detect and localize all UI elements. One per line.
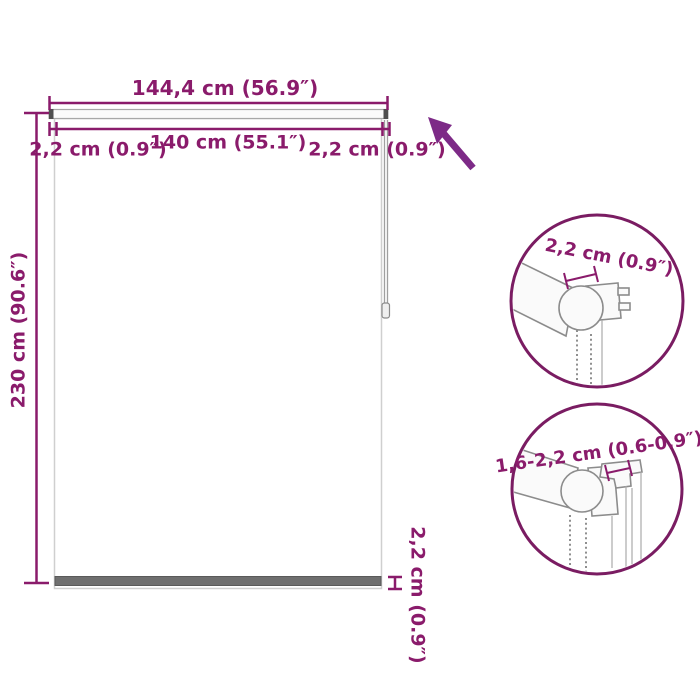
bracket-prong-bottom (619, 303, 630, 310)
label-left-margin: 2,2 cm (0.9″) (29, 141, 166, 160)
label-inner-width: 140 cm (55.1″) (150, 134, 307, 153)
roller-end-cap-left (49, 109, 54, 119)
roller-blind-front-view (49, 109, 390, 589)
chain-connector (382, 303, 390, 318)
product-dimension-diagram: 144,4 cm (56.9″) 2,2 cm (0.9″) 140 cm (5… (0, 0, 700, 700)
label-right-margin: 2,2 cm (0.9″) (308, 141, 445, 160)
blind-bottom-bar (55, 577, 381, 586)
blind-fabric (55, 119, 382, 589)
label-total-width: 144,4 cm (56.9″) (132, 78, 318, 98)
detail-circle-bottom (492, 404, 682, 574)
dimension-bottom-bar (388, 577, 402, 589)
roller-end-cap-detail (561, 470, 603, 512)
label-bottom-bar-height: 2,2 cm (0.9″) (408, 526, 427, 663)
label-height: 230 cm (90.6″) (10, 252, 29, 409)
bracket-prong-top (618, 288, 629, 295)
roller-end-cap-detail (559, 286, 603, 330)
diagram-linework (0, 0, 700, 700)
roller-end-cap-right (384, 109, 389, 119)
roller-tube (49, 110, 388, 119)
